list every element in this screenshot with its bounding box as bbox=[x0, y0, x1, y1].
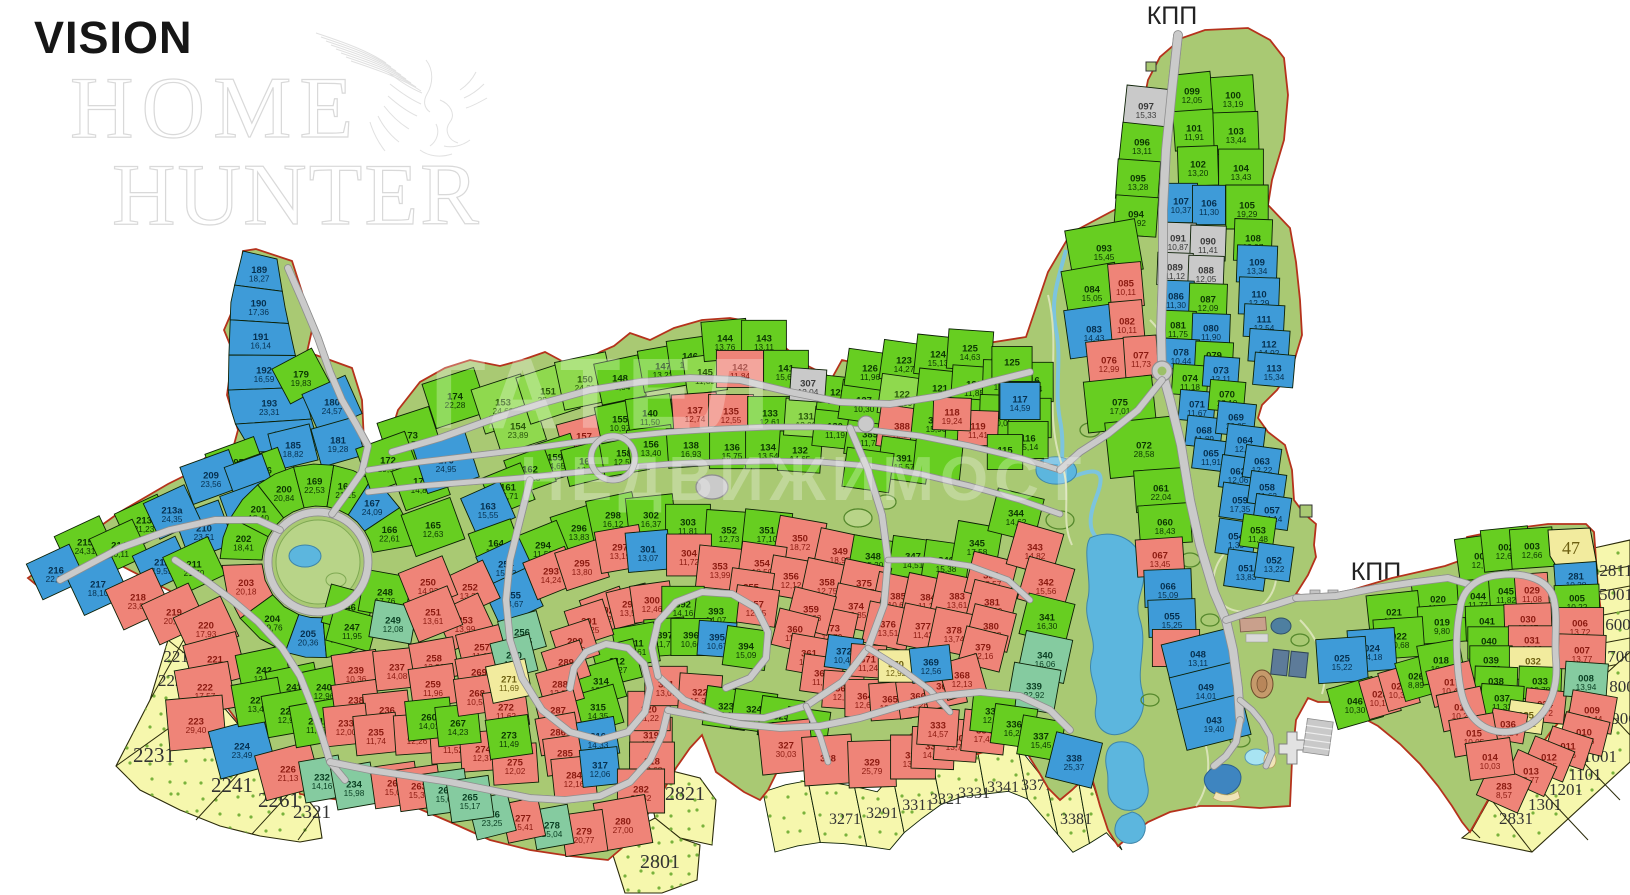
svg-text:11,19: 11,19 bbox=[825, 431, 845, 440]
svg-text:25,37: 25,37 bbox=[1064, 763, 1085, 772]
svg-text:2231: 2231 bbox=[133, 743, 175, 767]
svg-text:12,09: 12,09 bbox=[1198, 304, 1219, 313]
svg-text:24,57: 24,57 bbox=[322, 407, 343, 416]
svg-text:22,61: 22,61 bbox=[379, 534, 400, 543]
svg-text:11,96: 11,96 bbox=[423, 689, 443, 698]
svg-text:11,41: 11,41 bbox=[1198, 246, 1218, 255]
svg-text:13,74: 13,74 bbox=[944, 635, 965, 644]
svg-text:ГАТЕЛ: ГАТЕЛ bbox=[430, 338, 776, 450]
svg-text:12,00: 12,00 bbox=[336, 728, 357, 737]
svg-text:700: 700 bbox=[1607, 647, 1630, 666]
svg-text:1301: 1301 bbox=[1528, 795, 1562, 814]
svg-text:18,27: 18,27 bbox=[249, 275, 270, 284]
svg-text:14,27: 14,27 bbox=[894, 365, 915, 374]
svg-text:16,30: 16,30 bbox=[1037, 622, 1058, 631]
svg-text:13,11: 13,11 bbox=[1188, 659, 1208, 668]
svg-text:11,69: 11,69 bbox=[499, 684, 519, 693]
svg-text:12,73: 12,73 bbox=[719, 535, 740, 544]
svg-text:11,30: 11,30 bbox=[1199, 208, 1219, 217]
svg-text:12,06: 12,06 bbox=[590, 770, 611, 779]
svg-text:12,08: 12,08 bbox=[383, 625, 404, 634]
svg-text:19,29: 19,29 bbox=[1237, 210, 1258, 219]
svg-text:11,73: 11,73 bbox=[1131, 360, 1151, 369]
svg-text:15,09: 15,09 bbox=[1158, 591, 1179, 600]
svg-text:28,58: 28,58 bbox=[1134, 450, 1155, 459]
svg-text:3291: 3291 bbox=[866, 805, 898, 822]
svg-text:15,45: 15,45 bbox=[1031, 741, 1052, 750]
svg-text:HOME: HOME bbox=[70, 60, 361, 157]
svg-text:13,19: 13,19 bbox=[1223, 100, 1244, 109]
svg-text:15,33: 15,33 bbox=[1136, 111, 1157, 120]
svg-text:HUNTER: HUNTER bbox=[112, 147, 481, 244]
svg-text:VISION: VISION bbox=[34, 12, 193, 63]
svg-text:11,91: 11,91 bbox=[1184, 133, 1204, 142]
svg-text:15,98: 15,98 bbox=[344, 789, 365, 798]
svg-text:11,75: 11,75 bbox=[1168, 330, 1188, 339]
svg-text:18,41: 18,41 bbox=[233, 544, 254, 553]
svg-text:16,37: 16,37 bbox=[641, 520, 662, 529]
svg-text:15,05: 15,05 bbox=[1082, 294, 1103, 303]
svg-text:20,84: 20,84 bbox=[274, 494, 295, 503]
svg-text:8,89: 8,89 bbox=[1408, 681, 1424, 690]
svg-text:13,11: 13,11 bbox=[1132, 147, 1152, 156]
svg-text:17,36: 17,36 bbox=[248, 308, 269, 317]
svg-text:15,13: 15,13 bbox=[928, 359, 949, 368]
svg-text:15,17: 15,17 bbox=[460, 802, 481, 811]
svg-text:18,82: 18,82 bbox=[283, 450, 304, 459]
svg-text:23,49: 23,49 bbox=[232, 751, 253, 760]
svg-text:3271: 3271 bbox=[829, 811, 861, 828]
svg-text:10,11: 10,11 bbox=[1117, 326, 1137, 335]
svg-text:11,49: 11,49 bbox=[499, 740, 519, 749]
svg-text:11,30: 11,30 bbox=[1166, 301, 1186, 310]
svg-text:11,12: 11,12 bbox=[1165, 272, 1185, 281]
svg-text:2241: 2241 bbox=[211, 773, 253, 797]
svg-text:13,20: 13,20 bbox=[1188, 169, 1209, 178]
svg-text:13,61: 13,61 bbox=[947, 601, 968, 610]
svg-text:12,56: 12,56 bbox=[921, 667, 942, 676]
svg-text:27,00: 27,00 bbox=[613, 826, 634, 835]
svg-text:21,13: 21,13 bbox=[278, 774, 299, 783]
svg-text:29,40: 29,40 bbox=[186, 726, 207, 735]
svg-text:24,35: 24,35 bbox=[162, 515, 183, 524]
svg-text:14,01: 14,01 bbox=[1196, 692, 1217, 701]
svg-text:11,72: 11,72 bbox=[679, 558, 699, 567]
svg-text:24,95: 24,95 bbox=[436, 465, 457, 474]
svg-text:НЕДВИЖИМОСТ: НЕДВИЖИМОСТ bbox=[520, 445, 1087, 514]
svg-text:14,23: 14,23 bbox=[448, 728, 469, 737]
svg-text:14,57: 14,57 bbox=[928, 730, 949, 739]
svg-text:10,30: 10,30 bbox=[1345, 706, 1366, 715]
svg-text:12,05: 12,05 bbox=[1196, 275, 1217, 284]
svg-text:20,36: 20,36 bbox=[298, 638, 319, 647]
svg-text:2801: 2801 bbox=[640, 851, 680, 873]
svg-text:11,24: 11,24 bbox=[858, 664, 878, 673]
svg-text:12,02: 12,02 bbox=[505, 767, 526, 776]
svg-text:22,04: 22,04 bbox=[1151, 493, 1172, 502]
svg-text:15,56: 15,56 bbox=[1036, 587, 1057, 596]
svg-text:12,63: 12,63 bbox=[423, 530, 444, 539]
svg-text:23,31: 23,31 bbox=[259, 408, 280, 417]
svg-text:11,41: 11,41 bbox=[968, 431, 988, 440]
svg-text:12,99: 12,99 bbox=[1099, 365, 1120, 374]
svg-text:23,25: 23,25 bbox=[482, 819, 503, 828]
svg-text:25,79: 25,79 bbox=[862, 767, 883, 776]
svg-text:18,72: 18,72 bbox=[790, 543, 811, 552]
svg-text:15,45: 15,45 bbox=[1094, 253, 1115, 262]
svg-text:13,99: 13,99 bbox=[710, 571, 731, 580]
svg-text:10,11: 10,11 bbox=[1116, 288, 1136, 297]
svg-text:12,05: 12,05 bbox=[1182, 96, 1203, 105]
svg-text:11,91: 11,91 bbox=[1201, 458, 1221, 467]
svg-text:13,83: 13,83 bbox=[569, 533, 590, 542]
svg-text:13,44: 13,44 bbox=[1226, 136, 1247, 145]
svg-text:17,35: 17,35 bbox=[1230, 505, 1251, 514]
svg-text:13,51: 13,51 bbox=[878, 629, 899, 638]
svg-text:19,40: 19,40 bbox=[1204, 725, 1225, 734]
svg-text:15,25: 15,25 bbox=[1162, 621, 1183, 630]
svg-text:5001: 5001 bbox=[1599, 585, 1630, 604]
svg-text:15,34: 15,34 bbox=[1264, 373, 1285, 382]
svg-text:КПП: КПП bbox=[1147, 2, 1198, 30]
svg-text:14,08: 14,08 bbox=[387, 672, 408, 681]
svg-text:13,45: 13,45 bbox=[1150, 560, 1171, 569]
svg-text:12,16: 12,16 bbox=[564, 780, 585, 789]
svg-text:13,61: 13,61 bbox=[423, 617, 444, 626]
svg-text:13,34: 13,34 bbox=[1247, 267, 1268, 276]
svg-text:24,31: 24,31 bbox=[75, 547, 96, 556]
svg-text:13,22: 13,22 bbox=[1264, 565, 1285, 574]
svg-text:13,83: 13,83 bbox=[1236, 573, 1257, 582]
svg-text:14,16: 14,16 bbox=[673, 609, 694, 618]
svg-text:10,37: 10,37 bbox=[1171, 206, 1192, 215]
svg-text:18,43: 18,43 bbox=[1155, 527, 1176, 536]
svg-text:3381: 3381 bbox=[1060, 811, 1092, 828]
svg-text:13,28: 13,28 bbox=[1128, 183, 1149, 192]
svg-text:2321: 2321 bbox=[293, 802, 331, 823]
svg-text:12,66: 12,66 bbox=[1522, 551, 1543, 560]
svg-text:19,83: 19,83 bbox=[291, 379, 312, 388]
svg-text:11,95: 11,95 bbox=[342, 632, 362, 641]
svg-text:14,16: 14,16 bbox=[312, 782, 333, 791]
svg-text:600: 600 bbox=[1605, 615, 1630, 634]
svg-text:13,07: 13,07 bbox=[638, 554, 659, 563]
svg-text:15,55: 15,55 bbox=[478, 511, 499, 520]
svg-text:14,63: 14,63 bbox=[960, 353, 981, 362]
svg-text:3331: 3331 bbox=[958, 785, 990, 802]
svg-text:24,09: 24,09 bbox=[362, 508, 383, 517]
svg-text:8,57: 8,57 bbox=[1496, 791, 1512, 800]
svg-text:11,08: 11,08 bbox=[1522, 595, 1542, 604]
svg-text:2821: 2821 bbox=[665, 783, 705, 805]
svg-text:19,24: 19,24 bbox=[942, 417, 963, 426]
svg-text:800: 800 bbox=[1609, 677, 1630, 696]
svg-text:16,59: 16,59 bbox=[254, 375, 275, 384]
svg-text:23,56: 23,56 bbox=[201, 480, 222, 489]
svg-text:3311: 3311 bbox=[902, 797, 933, 814]
svg-text:20,77: 20,77 bbox=[574, 836, 595, 845]
svg-text:11,74: 11,74 bbox=[366, 737, 386, 746]
svg-text:30,03: 30,03 bbox=[776, 750, 797, 759]
svg-text:15,22: 15,22 bbox=[1332, 663, 1353, 672]
svg-text:11,96: 11,96 bbox=[860, 373, 880, 382]
svg-text:17,10: 17,10 bbox=[757, 535, 778, 544]
svg-text:15,09: 15,09 bbox=[736, 651, 757, 660]
svg-text:47: 47 bbox=[1562, 538, 1580, 558]
svg-text:2811: 2811 bbox=[1599, 561, 1630, 580]
svg-text:10,87: 10,87 bbox=[1168, 243, 1189, 252]
svg-text:12,13: 12,13 bbox=[952, 680, 973, 689]
svg-text:11,48: 11,48 bbox=[1248, 535, 1268, 544]
svg-text:14,24: 14,24 bbox=[541, 576, 562, 585]
svg-text:13,43: 13,43 bbox=[1231, 173, 1252, 182]
svg-text:14,59: 14,59 bbox=[1010, 404, 1031, 413]
svg-text:11,90: 11,90 bbox=[1201, 333, 1221, 342]
svg-text:3341: 3341 bbox=[987, 779, 1019, 796]
svg-text:125: 125 bbox=[1004, 358, 1021, 369]
svg-text:20,18: 20,18 bbox=[236, 588, 257, 597]
svg-text:19,28: 19,28 bbox=[328, 445, 349, 454]
svg-text:13,80: 13,80 bbox=[572, 568, 593, 577]
svg-text:10,03: 10,03 bbox=[1480, 762, 1501, 771]
svg-text:9,80: 9,80 bbox=[1434, 627, 1450, 636]
svg-text:22,53: 22,53 bbox=[304, 486, 325, 495]
svg-text:16,14: 16,14 bbox=[250, 342, 271, 351]
svg-text:12,46: 12,46 bbox=[642, 605, 663, 614]
